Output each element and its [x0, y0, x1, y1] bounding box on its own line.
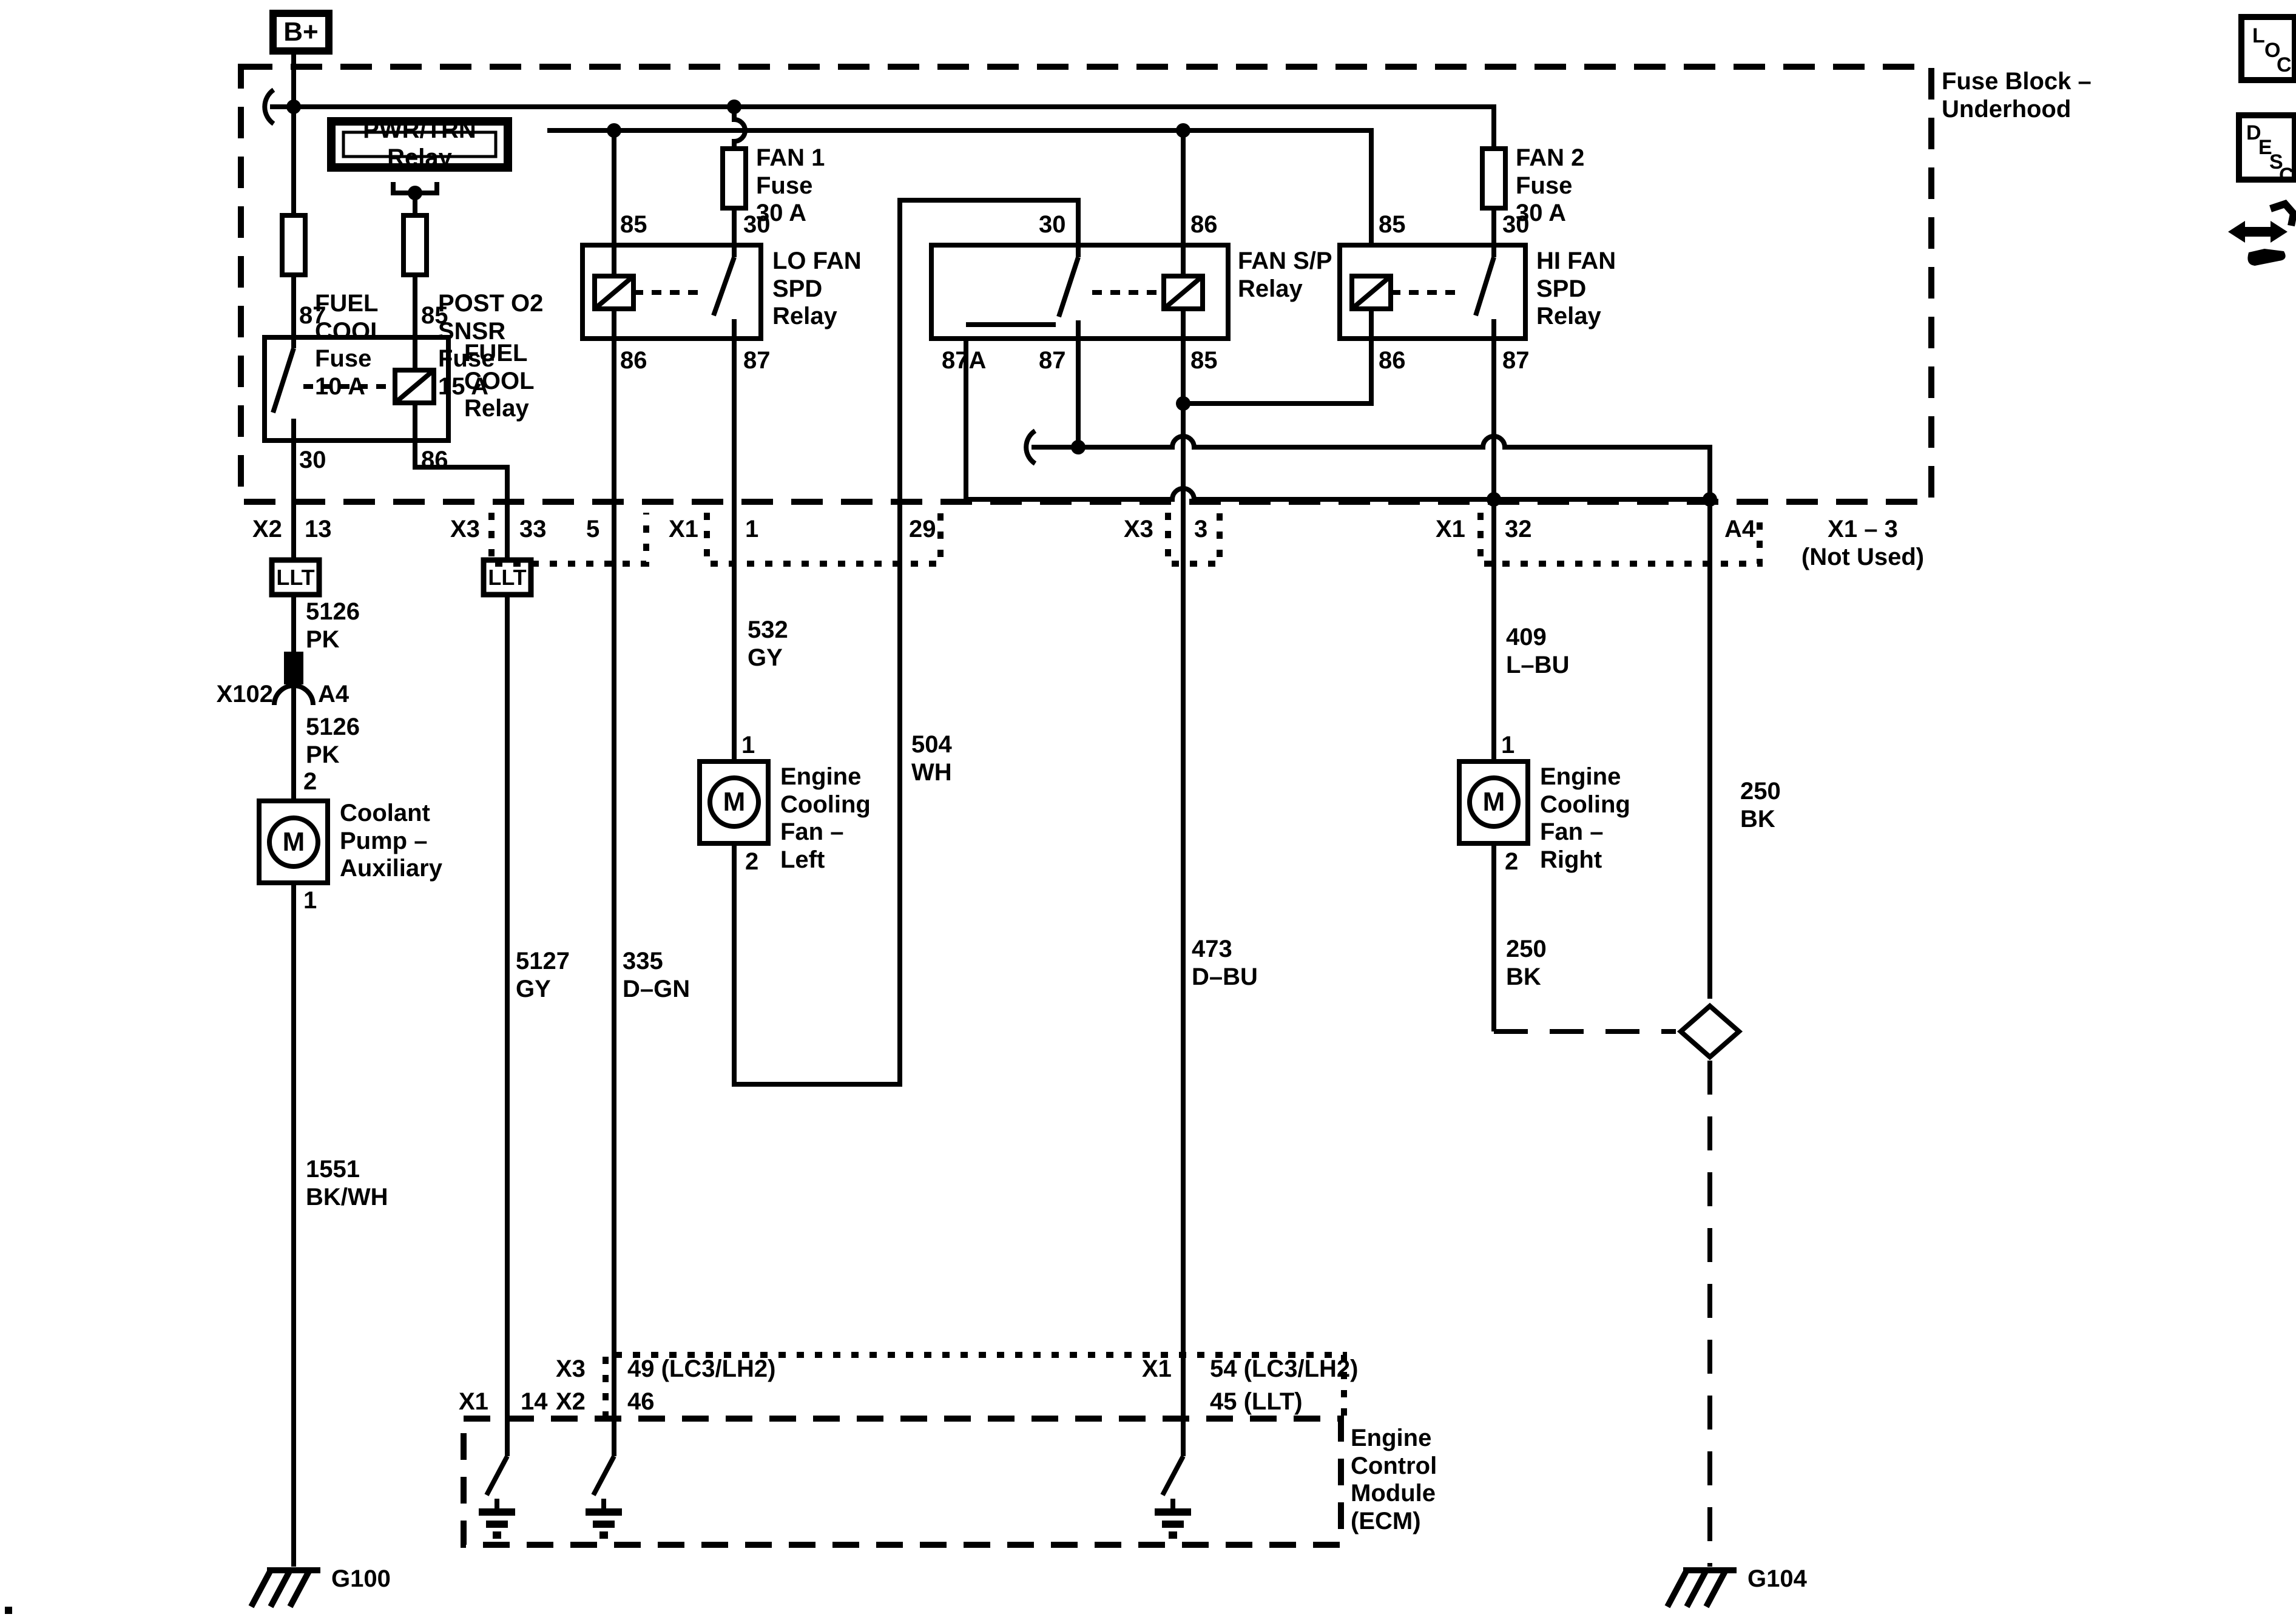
conn-x1-right: X1 [1436, 516, 1465, 544]
pin-hi-85: 85 [1379, 211, 1406, 239]
wire-504-label: 504 WH [911, 731, 952, 786]
conn-x2: X2 [252, 516, 282, 544]
x102-label: X102 [200, 681, 273, 709]
conn-33: 33 [519, 516, 547, 544]
fuel-cool-fuse-symbol [282, 215, 305, 275]
conn-1: 1 [745, 516, 758, 544]
lfan-pin2: 2 [745, 848, 758, 876]
pin-sp-87a: 87A [942, 347, 986, 375]
wire-532-label: 532 GY [748, 616, 788, 672]
bplus-label: B+ [273, 13, 329, 51]
signal-ground-icon [479, 1512, 515, 1535]
pin-sp-85: 85 [1190, 347, 1218, 375]
g104-label: G104 [1747, 1565, 1807, 1593]
coolant-pump-label: Coolant Pump – Auxiliary [340, 800, 442, 883]
left-fan-label: Engine Cooling Fan – Left [780, 763, 871, 874]
pin-fc-30: 30 [299, 447, 326, 474]
wire-1551-label: 1551 BK/WH [306, 1156, 388, 1211]
g100-label: G100 [331, 1565, 391, 1593]
pwr-trn-relay-label: PWR/TRN Relay [331, 121, 508, 167]
pin-hi-30: 30 [1502, 211, 1530, 239]
connector-box-x1-left [707, 513, 940, 564]
rfan-pin2: 2 [1505, 848, 1518, 876]
wire-335-label: 335 D–GN [623, 948, 690, 1003]
pump-motor-m: M [269, 818, 318, 866]
conn-x1-left: X1 [669, 516, 698, 544]
ecm-14: 14 [521, 1388, 548, 1416]
wire-250-right-label: 250 BK [1740, 778, 1781, 833]
conn-29: 29 [909, 516, 936, 544]
wiring-diagram-page: B+ PWR/TRN Relay Fuse Block – Underhood … [0, 0, 2296, 1617]
conn-13: 13 [305, 516, 332, 544]
pin-sp-86: 86 [1190, 211, 1218, 239]
wire-473-label: 473 D–BU [1192, 936, 1258, 991]
ecm-46: 46 [627, 1388, 655, 1416]
pin-lo-85: 85 [620, 211, 647, 239]
conn-not-used: X1 – 3 (Not Used) [1778, 516, 1948, 571]
pin-lo-87: 87 [743, 347, 771, 375]
lfan-motor-m: M [710, 778, 758, 826]
pin-fc-87: 87 [299, 302, 326, 330]
sp-87-line [1032, 436, 1710, 499]
fuse-block-title: Fuse Block – Underhood [1942, 68, 2092, 123]
fan1-fuse-symbol [723, 149, 746, 208]
pin-hi-86: 86 [1379, 347, 1406, 375]
ground-icon-g104 [1667, 1570, 1737, 1607]
hi-fan-relay-label: HI FAN SPD Relay [1536, 248, 1616, 331]
pin-fc-86: 86 [421, 447, 448, 474]
ecm-49: 49 (LC3/LH2) [627, 1355, 776, 1383]
signal-ground-icon [1155, 1512, 1191, 1535]
ecm-45: 45 (LLT) [1210, 1388, 1303, 1416]
conn-32: 32 [1505, 516, 1532, 544]
x102-a4-label: A4 [318, 681, 349, 709]
wire-5127-label: 5127 GY [516, 948, 570, 1003]
ecm-ground-switch-45 [1155, 1456, 1191, 1535]
pin-hi-87: 87 [1502, 347, 1530, 375]
loc-letter-c: C [2277, 53, 2292, 77]
fuel-cool-relay-label: FUEL COOL Relay [464, 340, 535, 423]
x102-connector-symbol [286, 654, 301, 682]
conn-a4: A4 [1724, 516, 1755, 544]
loc-letter-l: L [2252, 24, 2265, 48]
pin-sp-87: 87 [1039, 347, 1066, 375]
fan2-fuse-symbol [1482, 149, 1505, 208]
wire-5126-upper-label: 5126 PK [306, 598, 360, 653]
llt1-label: LLT [272, 560, 319, 595]
fan-sp-relay-label: FAN S/P Relay [1238, 248, 1332, 303]
pin-lo-86: 86 [620, 347, 647, 375]
ground-icon-g100 [251, 1570, 320, 1607]
ecm-54: 54 (LC3/LH2) [1210, 1355, 1359, 1383]
rfan-pin1: 1 [1501, 732, 1514, 760]
ecm-title: Engine Control Module (ECM) [1351, 1425, 1437, 1535]
wiring-repair-icon [2228, 204, 2294, 266]
ecm-ground-switch-46 [586, 1456, 622, 1535]
wire-409-label: 409 L–BU [1506, 624, 1569, 679]
connector-box-x3-left [491, 513, 646, 564]
pump-pin2: 2 [303, 768, 317, 796]
right-fan-label: Engine Cooling Fan – Right [1540, 763, 1630, 874]
wire-250-fan-label: 250 BK [1506, 936, 1547, 991]
splice-diamond-icon [1681, 1006, 1739, 1057]
conn-3: 3 [1194, 516, 1207, 544]
ecm-ground-switch-14 [479, 1456, 515, 1535]
wire-5126-lower-label: 5126 PK [306, 714, 360, 769]
ecm-x2: X2 [556, 1388, 586, 1416]
pump-pin1: 1 [303, 887, 317, 915]
signal-ground-icon [586, 1512, 622, 1535]
ecm-x1-left: X1 [459, 1388, 488, 1416]
pin-fc-85: 85 [421, 302, 448, 330]
rfan-motor-m: M [1470, 778, 1518, 826]
ecm-x1-right: X1 [1142, 1355, 1172, 1383]
llt2-label: LLT [484, 560, 531, 595]
ecm-x3: X3 [556, 1355, 586, 1383]
conn-x3-left: X3 [450, 516, 480, 544]
lfan-pin1: 1 [741, 732, 755, 760]
conn-x3-mid: X3 [1124, 516, 1153, 544]
lo-fan-relay-label: LO FAN SPD Relay [772, 248, 862, 331]
conn-5: 5 [586, 516, 599, 544]
pin-lo-30: 30 [743, 211, 771, 239]
post-o2-fuse-symbol [403, 215, 427, 275]
pin-sp-30: 30 [1039, 211, 1066, 239]
page-artifact-dot [5, 1607, 12, 1614]
desc-letter-c: C [2279, 164, 2294, 187]
